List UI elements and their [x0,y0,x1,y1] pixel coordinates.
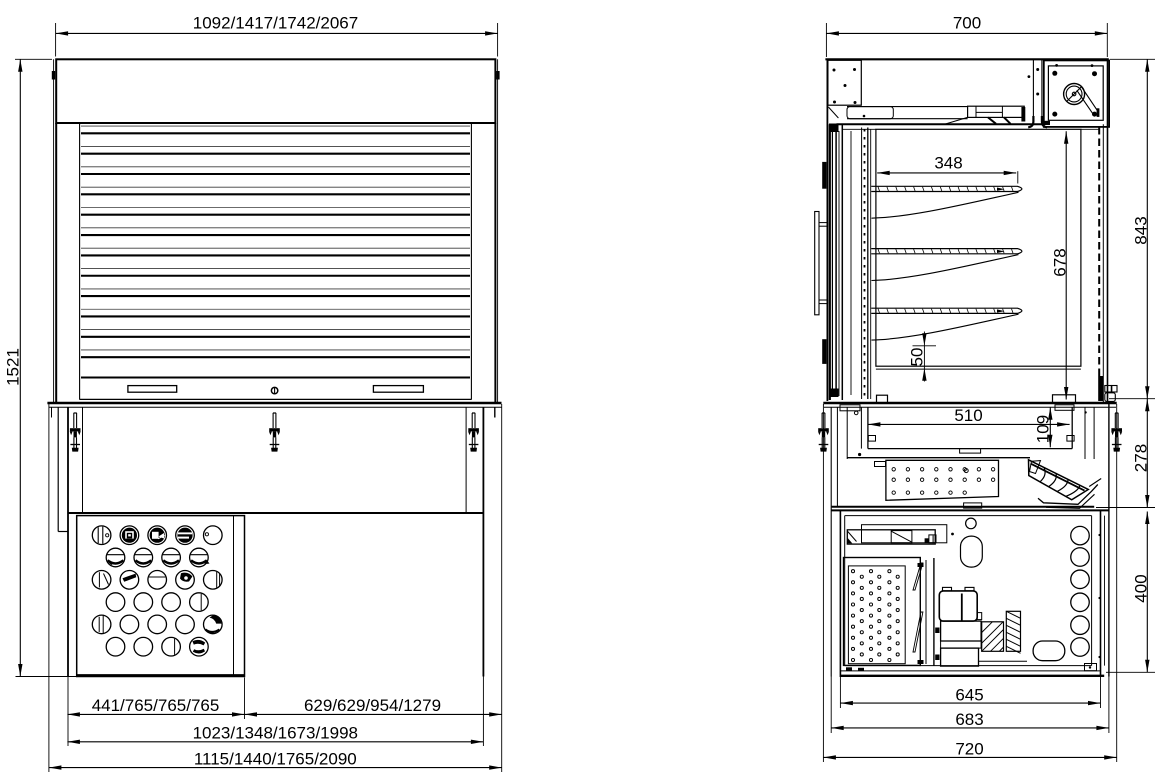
svg-text:678: 678 [1051,248,1070,276]
svg-text:278: 278 [1131,444,1150,472]
svg-text:400: 400 [1131,574,1150,602]
svg-text:700: 700 [953,14,981,33]
svg-text:1023/1348/1673/1998: 1023/1348/1673/1998 [193,724,358,743]
svg-text:1521: 1521 [3,348,22,386]
svg-text:441/765/765/765: 441/765/765/765 [92,696,220,715]
svg-text:720: 720 [955,740,983,759]
svg-text:1092/1417/1742/2067: 1092/1417/1742/2067 [193,14,358,33]
svg-text:645: 645 [955,685,983,704]
svg-text:50: 50 [908,348,927,367]
svg-text:348: 348 [934,153,962,172]
svg-text:683: 683 [955,710,983,729]
svg-text:629/629/954/1279: 629/629/954/1279 [304,696,441,715]
svg-text:1115/1440/1765/2090: 1115/1440/1765/2090 [194,749,357,768]
svg-text:843: 843 [1131,216,1150,244]
svg-text:510: 510 [954,406,982,425]
svg-text:109: 109 [1034,415,1053,443]
